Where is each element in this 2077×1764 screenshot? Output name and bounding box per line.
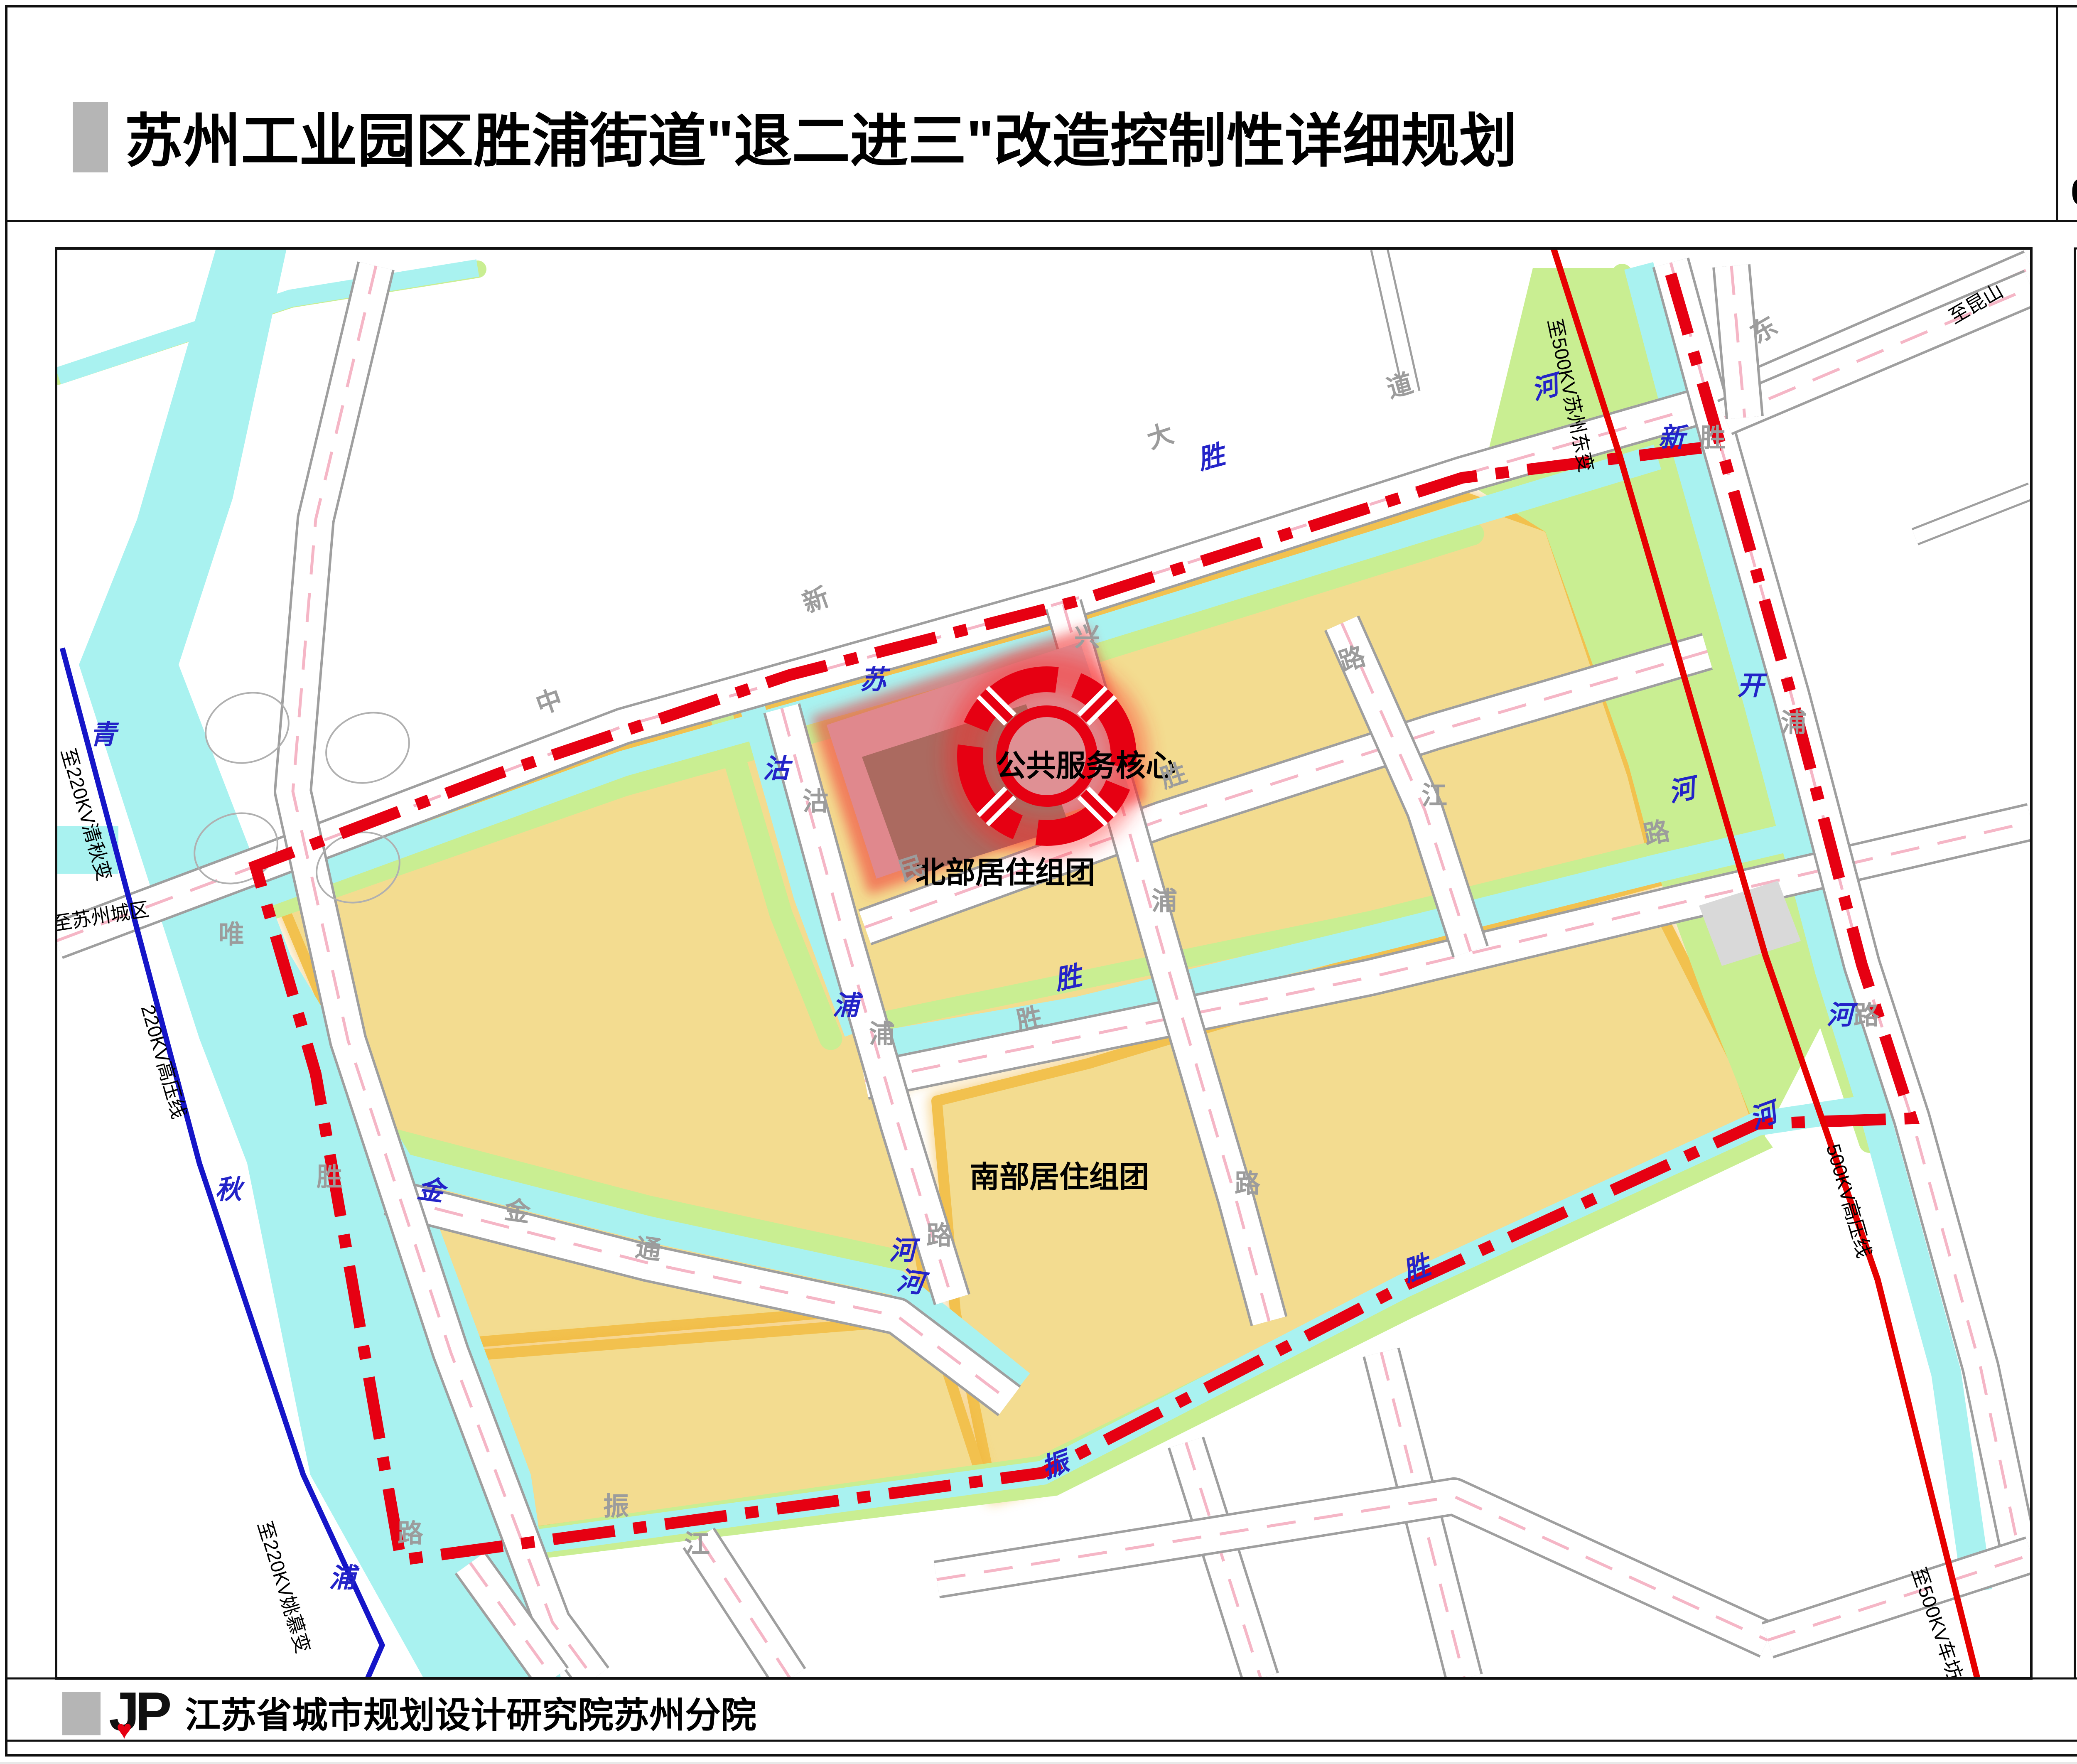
river-label-30: 青 xyxy=(90,720,119,749)
plan-svg: 苏州工业园区胜浦街道"退二进三"改造控制性详细规划 06 规划结构分析图 xyxy=(0,0,2077,1762)
river-label-37: 浦 xyxy=(832,991,863,1020)
road-label-20: 胜 xyxy=(1700,424,1726,452)
road-label-24: 胜 xyxy=(317,1163,342,1192)
river-label-44: 开 xyxy=(1737,671,1768,700)
road-north-stub xyxy=(1731,266,1745,418)
river-label-33: 苏 xyxy=(860,665,891,695)
logo-heart-icon: ♥ xyxy=(116,1715,132,1744)
company-name: 江苏省城市规划设计研究院苏州分院 xyxy=(185,1695,756,1735)
area-label-0: 公共服务核心 xyxy=(996,749,1176,783)
area-label-2: 南部居住组团 xyxy=(970,1161,1149,1194)
page-title: 苏州工业园区胜浦街道"退二进三"改造控制性详细规划 xyxy=(125,108,1517,174)
road-label-18: 江 xyxy=(1421,781,1447,810)
road-label-26: 金 xyxy=(502,1195,533,1227)
road-label-21: 浦 xyxy=(1781,709,1807,737)
road-label-8: 兴 xyxy=(1074,623,1100,652)
plan-sheet: 苏州工业园区胜浦街道"退二进三"改造控制性详细规划 06 规划结构分析图 xyxy=(0,0,2077,1762)
road-label-27: 通 xyxy=(633,1233,663,1265)
river-label-32: 浦 xyxy=(329,1563,360,1593)
title-bullet xyxy=(73,102,108,172)
road-label-28: 振 xyxy=(603,1492,629,1521)
footer-bullet xyxy=(62,1692,101,1735)
jp-logo: JP ♥ xyxy=(109,1681,170,1744)
road-label-29: 江 xyxy=(684,1530,710,1559)
river-label-31: 秋 xyxy=(215,1175,245,1204)
area-label-1: 北部居住组团 xyxy=(916,856,1095,889)
side-panel xyxy=(2075,248,2077,1678)
plate-number-title: 06 规划结构分析图 xyxy=(2071,171,2077,212)
river-label-36: 沽 xyxy=(763,754,793,784)
road-label-15: 浦 xyxy=(869,1020,895,1049)
road-label-25: 路 xyxy=(398,1519,424,1548)
road-label-23: 唯 xyxy=(219,920,244,949)
road-label-14: 沽 xyxy=(803,787,828,816)
road-label-9: 浦 xyxy=(1151,887,1177,916)
road-label-10: 路 xyxy=(1235,1169,1261,1198)
footer: JP ♥ 江苏省城市规划设计研究院苏州分院 2015.03 xyxy=(62,1681,2077,1744)
river-label-43: 新 xyxy=(1658,423,1689,452)
road-label-22: 路 xyxy=(1854,1001,1880,1030)
road-label-16: 路 xyxy=(926,1221,953,1250)
